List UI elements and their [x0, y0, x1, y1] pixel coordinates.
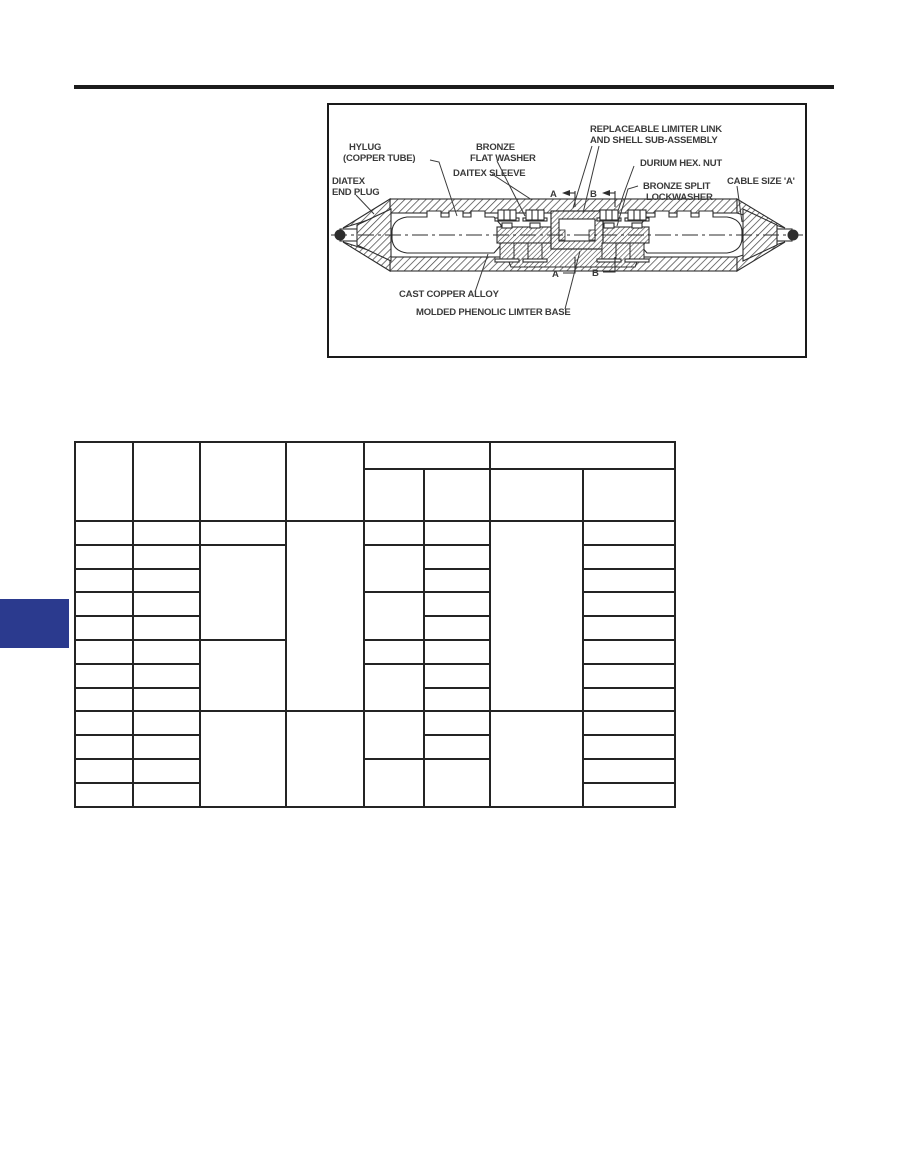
label-hylug: HYLUG: [349, 142, 381, 153]
table-cell: [75, 688, 133, 712]
table-header-cell: [200, 442, 286, 521]
table-cell: [133, 688, 200, 712]
table-cell: [133, 711, 200, 735]
table-cell: [133, 640, 200, 664]
section-b-top: B: [590, 189, 597, 200]
table-cell: [133, 569, 200, 593]
label-hylug-2: (COPPER TUBE): [343, 153, 415, 164]
table-cell: [583, 711, 675, 735]
table-cell: [490, 521, 583, 711]
label-cable-size: CABLE SIZE 'A': [727, 176, 795, 187]
table-cell: [583, 759, 675, 783]
table-cell: [424, 616, 490, 640]
label-end-plug: DIATEX: [332, 176, 366, 187]
table-cell: [364, 545, 424, 593]
label-flat-washer: BRONZE: [476, 142, 515, 153]
table-cell: [364, 521, 424, 545]
table-cell: [424, 569, 490, 593]
table-header-cell: [286, 442, 364, 521]
shell-sub-assembly: [551, 211, 603, 249]
table-cell: [133, 592, 200, 616]
table-cell: [364, 640, 424, 664]
table-cell: [583, 569, 675, 593]
table-cell: [133, 616, 200, 640]
document-page: A B A B HYLUG (CO: [0, 0, 905, 1175]
table-header-cell: [490, 469, 583, 521]
table-header-group-cell: [364, 442, 490, 469]
table-cell: [75, 664, 133, 688]
label-sleeve: DAITEX SLEEVE: [453, 168, 525, 179]
page-edge-tab-marker: [0, 599, 69, 648]
table-cell: [583, 783, 675, 807]
label-flat-washer-2: FLAT WASHER: [470, 153, 536, 164]
top-rule: [74, 85, 834, 89]
table-header-cell: [583, 469, 675, 521]
table-cell: [200, 545, 286, 640]
table-cell: [424, 759, 490, 807]
table-cell: [424, 521, 490, 545]
table-row: [75, 759, 675, 783]
table-cell: [200, 521, 286, 545]
table-cell: [364, 592, 424, 640]
table-row: [75, 711, 675, 735]
table-cell: [424, 592, 490, 616]
cable-limiter-diagram: A B A B HYLUG (CO: [329, 105, 805, 356]
table-cell: [133, 783, 200, 807]
table-cell: [490, 711, 583, 806]
table-cell: [424, 545, 490, 569]
table-cell: [424, 640, 490, 664]
label-limiter-link: REPLACEABLE LIMITER LINK: [590, 124, 722, 135]
label-lockwasher: BRONZE SPLIT: [643, 181, 711, 192]
label-cast-copper: CAST COPPER ALLOY: [399, 289, 500, 300]
table-cell: [583, 640, 675, 664]
label-phenolic-base: MOLDED PHENOLIC LIMTER BASE: [416, 307, 571, 318]
table-cell: [75, 592, 133, 616]
table-cell: [364, 711, 424, 759]
table-header-cell: [424, 469, 490, 521]
table-header-cell: [364, 469, 424, 521]
figure-box: A B A B HYLUG (CO: [327, 103, 807, 358]
section-a-top: A: [550, 189, 557, 200]
table-cell: [364, 664, 424, 712]
label-limiter-link-2: AND SHELL SUB-ASSEMBLY: [590, 135, 718, 146]
table-row: [75, 521, 675, 545]
table-cell: [200, 640, 286, 711]
table-cell: [583, 688, 675, 712]
table-cell: [200, 711, 286, 806]
section-b-bottom: B: [592, 268, 599, 279]
table-row: [75, 640, 675, 664]
table-cell: [583, 545, 675, 569]
table-cell: [75, 640, 133, 664]
table-cell: [583, 735, 675, 759]
table-cell: [424, 711, 490, 735]
table-cell: [75, 711, 133, 735]
table-row: [75, 545, 675, 569]
table-cell: [75, 569, 133, 593]
table-cell: [133, 664, 200, 688]
table-cell: [424, 688, 490, 712]
table-cell: [583, 616, 675, 640]
table-cell: [75, 616, 133, 640]
table-cell: [424, 735, 490, 759]
table-cell: [75, 735, 133, 759]
table-header-cell: [133, 442, 200, 521]
table-cell: [75, 545, 133, 569]
table-cell: [364, 759, 424, 807]
table-cell: [75, 783, 133, 807]
table-row: [75, 592, 675, 616]
table-cell: [424, 664, 490, 688]
table-cell: [583, 664, 675, 688]
table-cell: [133, 735, 200, 759]
table-cell: [286, 711, 364, 806]
table-cell: [75, 521, 133, 545]
table-header-cell: [75, 442, 133, 521]
table-cell: [286, 521, 364, 711]
table-cell: [133, 521, 200, 545]
table-cell: [583, 592, 675, 616]
table-cell: [75, 759, 133, 783]
spec-table: [74, 441, 676, 808]
table-cell: [133, 759, 200, 783]
section-a-bottom: A: [552, 269, 559, 280]
label-hex-nut: DURIUM HEX. NUT: [640, 158, 722, 169]
label-end-plug-2: END PLUG: [332, 187, 380, 198]
table-cell: [133, 545, 200, 569]
table-row: [75, 664, 675, 688]
table-cell: [583, 521, 675, 545]
table-header-group-cell: [490, 442, 675, 469]
label-lockwasher-2: LOCKWASHER: [646, 192, 713, 203]
